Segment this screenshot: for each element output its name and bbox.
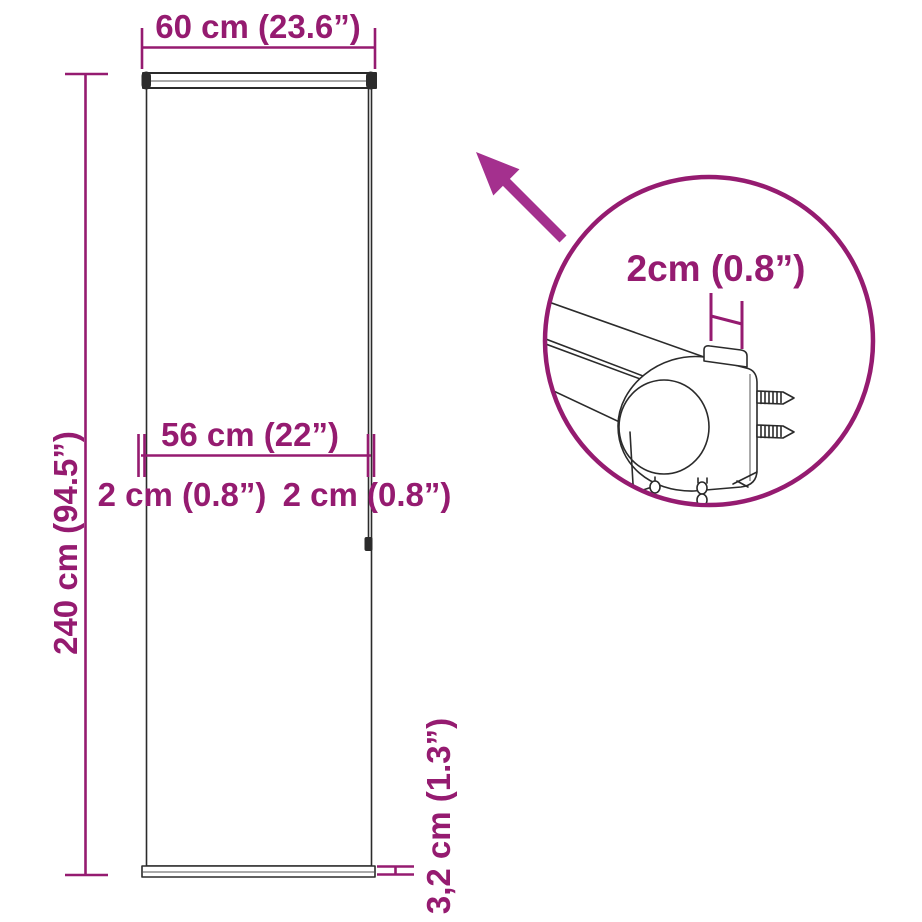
dim-label-right-offset: 2 cm (0.8”) [283, 476, 452, 513]
dim-top-width: 60 cm (23.6”) [142, 8, 375, 69]
pull-cord-end [365, 537, 373, 551]
right-end-cap [366, 72, 376, 90]
left-end-cap [142, 72, 152, 90]
detail-pointer-arrow-icon [476, 152, 567, 243]
dim-label-bracket-span: 56 cm (22”) [161, 416, 339, 453]
dim-label-bottom-bar: 3,2 cm (1.3”) [420, 718, 457, 914]
dim-label-top-width: 60 cm (23.6”) [155, 8, 360, 45]
dim-label-left-offset: 2 cm (0.8”) [98, 476, 267, 513]
dim-label-height: 240 cm (94.5”) [47, 431, 84, 655]
roller-blind-dimension-diagram: 60 cm (23.6”) 240 cm (94.5”) 56 cm (22”)… [0, 0, 922, 922]
diagram-svg: 60 cm (23.6”) 240 cm (94.5”) 56 cm (22”)… [0, 0, 922, 922]
dim-bottom-bar: 3,2 cm (1.3”) [377, 718, 457, 914]
detail-circle: 2cm (0.8”) [543, 177, 873, 518]
roller-blind [142, 72, 377, 878]
dim-label-tab-width: 2cm (0.8”) [627, 248, 806, 289]
dim-height: 240 cm (94.5”) [47, 74, 108, 875]
